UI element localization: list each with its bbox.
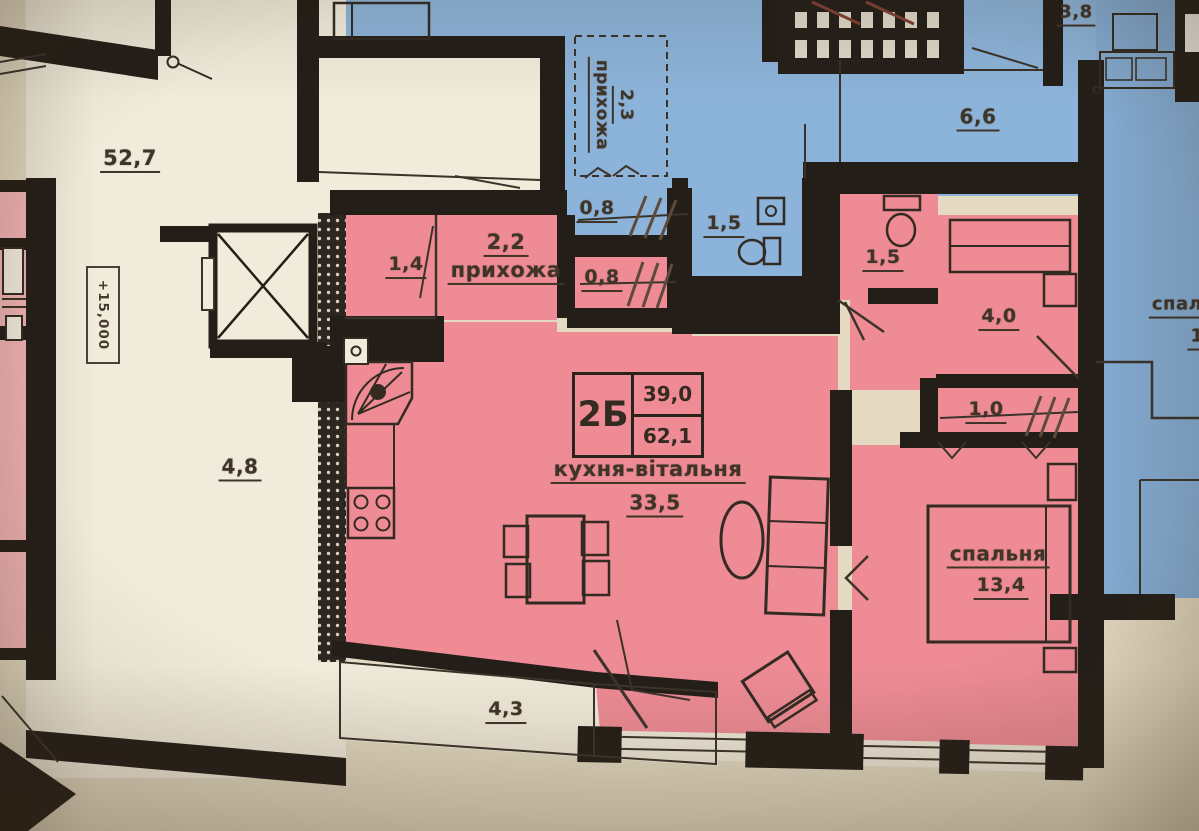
- wall-segment: [868, 288, 938, 304]
- floorplan-photo: 52,7 2,3 прихожа 0,8 1,5 3,8 6,6 1,4 2,2…: [0, 0, 1199, 831]
- washer: [344, 338, 368, 364]
- wall-segment: [936, 374, 1082, 388]
- wall-segment: [1045, 746, 1084, 781]
- wall-segment: [557, 215, 575, 318]
- wall-segment: [1043, 0, 1063, 86]
- wall-segment: [297, 0, 319, 182]
- corner-sink-drain: [370, 384, 386, 400]
- wall-segment: [292, 346, 346, 402]
- wall-segment: [803, 162, 1082, 194]
- room-hall-2-2: [436, 208, 557, 320]
- wall-segment: [26, 178, 56, 680]
- window-opening: [621, 731, 746, 762]
- common-mid-room: [319, 40, 565, 178]
- wall-segment: [0, 540, 30, 552]
- elevator-shaft: [202, 228, 313, 344]
- wall-segment: [155, 0, 171, 56]
- window-opening: [863, 740, 940, 768]
- stair-block: [778, 0, 964, 74]
- wall-segment: [0, 180, 30, 192]
- elevator-counterweight: [202, 258, 214, 310]
- wall-segment: [920, 378, 938, 448]
- wall-segment: [1078, 60, 1104, 768]
- wall-segment: [939, 740, 970, 775]
- paper-edge: [1185, 14, 1199, 52]
- wall-segment: [672, 178, 688, 276]
- wall-segment: [330, 190, 567, 215]
- wall-segment: [820, 194, 838, 278]
- hatched-wall: [318, 213, 346, 662]
- wall-segment: [540, 56, 565, 192]
- room-1-4: [340, 215, 436, 320]
- wall-segment: [745, 731, 864, 769]
- bed-left-edge: [3, 248, 23, 294]
- floorplan-drawing: [0, 0, 1199, 831]
- wardrobe-room-4-0: [935, 215, 1082, 300]
- bathroom-1-5-pink: [838, 190, 938, 300]
- staircase: [778, 0, 964, 74]
- wall-segment: [160, 226, 215, 242]
- wall-entry-band: [672, 276, 840, 334]
- wall-segment: [0, 648, 30, 660]
- fixture-left-edge: [6, 316, 22, 340]
- wall-segment: [830, 390, 852, 546]
- wall-segment: [762, 0, 780, 62]
- window-opening: [969, 744, 1046, 772]
